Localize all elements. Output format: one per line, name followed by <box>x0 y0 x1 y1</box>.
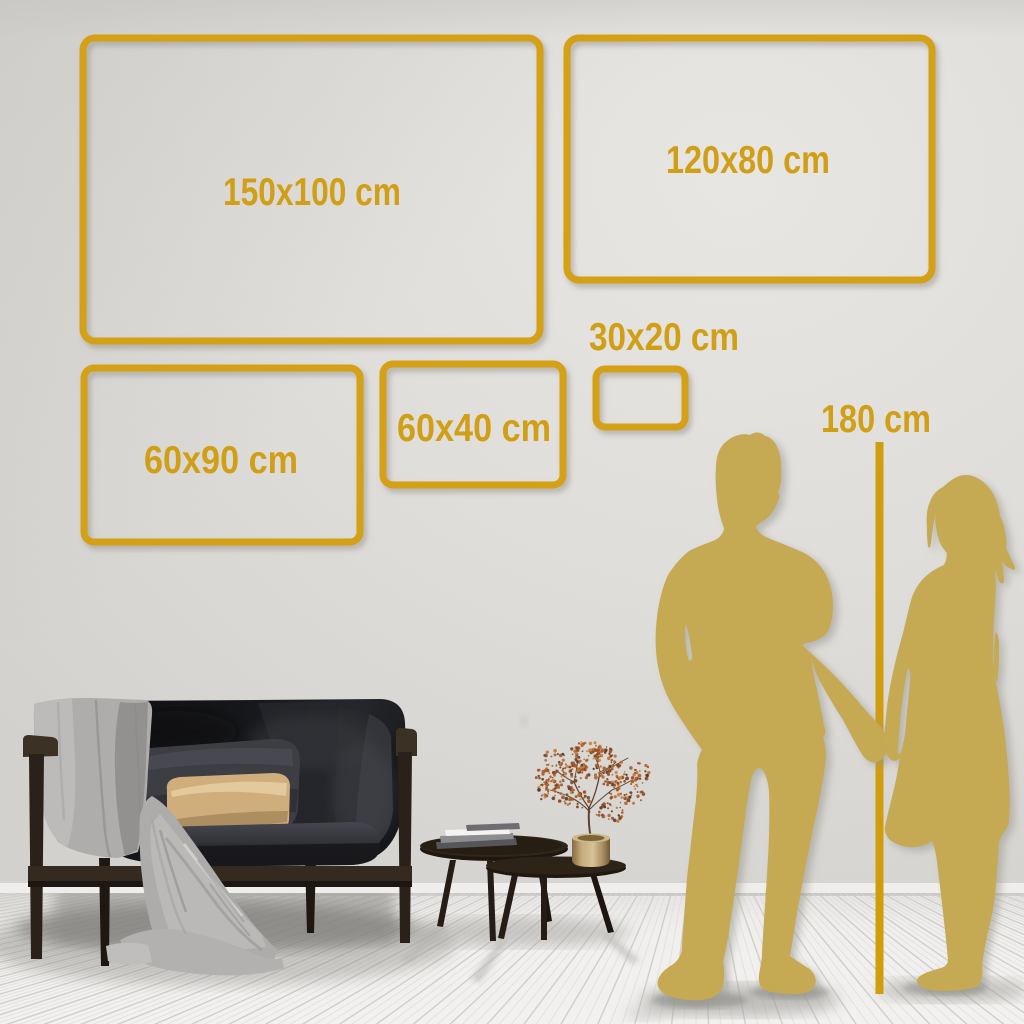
svg-text:150x100 cm: 150x100 cm <box>223 171 401 214</box>
svg-text:60x90 cm: 60x90 cm <box>144 439 298 482</box>
svg-text:60x40 cm: 60x40 cm <box>397 407 551 450</box>
svg-text:120x80 cm: 120x80 cm <box>666 139 830 182</box>
svg-text:30x20 cm: 30x20 cm <box>589 316 739 359</box>
svg-text:180 cm: 180 cm <box>821 398 931 441</box>
